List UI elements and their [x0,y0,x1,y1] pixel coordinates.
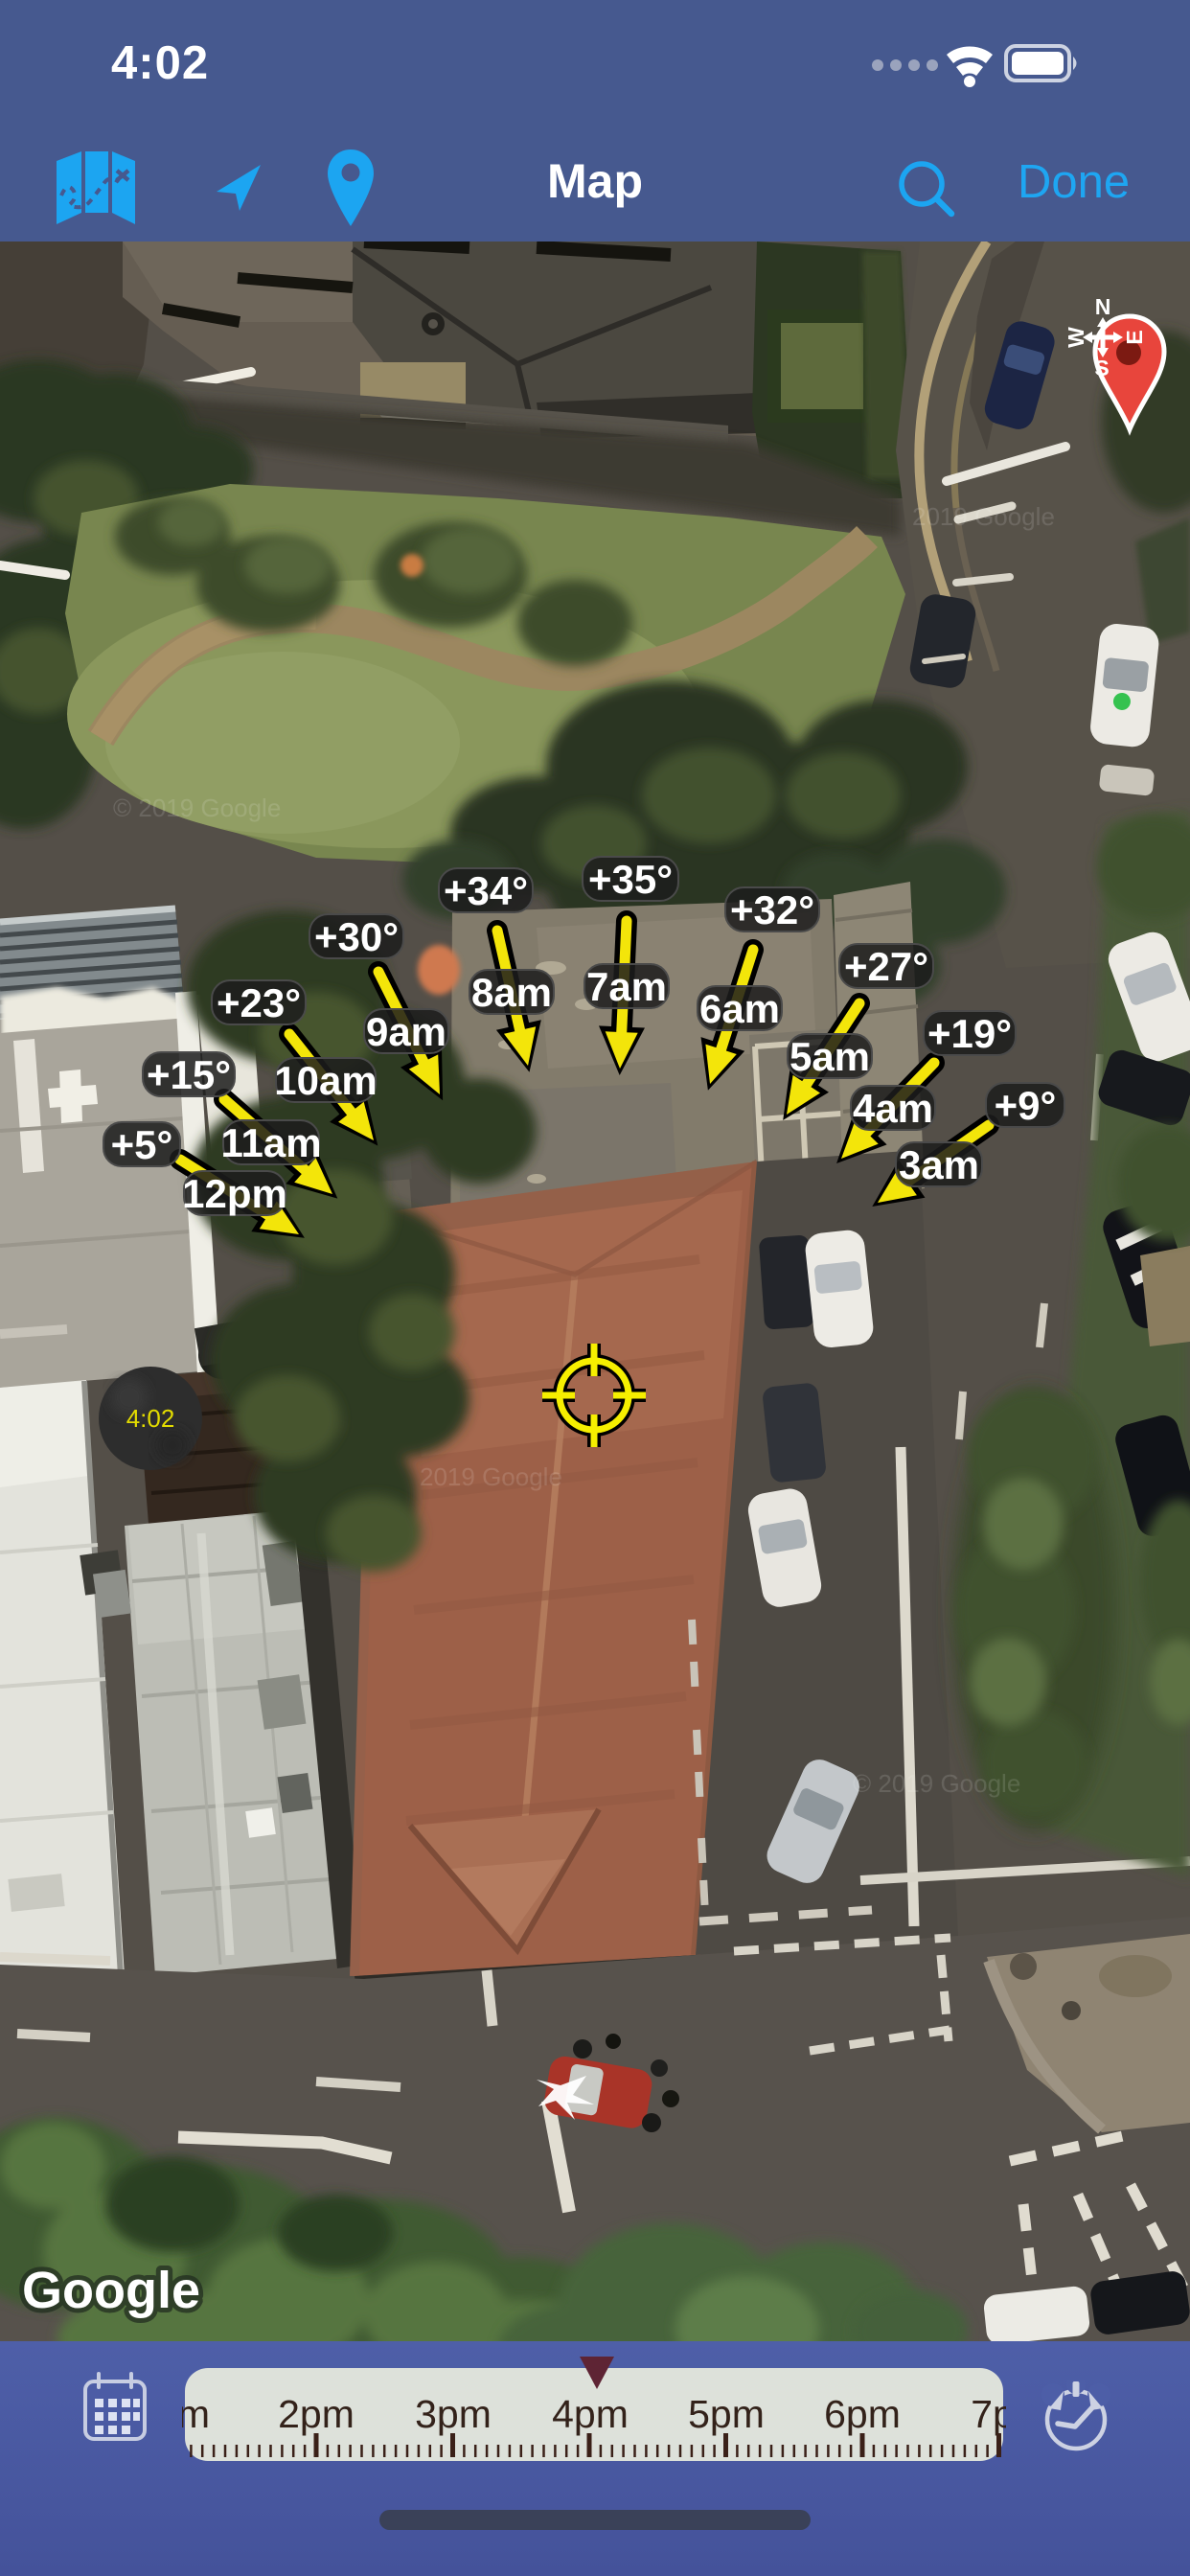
svg-text:+15°: +15° [147,1052,231,1097]
svg-text:10am: 10am [274,1058,377,1103]
svg-text:m: m [182,2392,210,2436]
svg-text:+34°: +34° [444,868,528,913]
svg-text:S: S [1094,356,1109,380]
svg-text:4am: 4am [853,1086,933,1131]
svg-text:+27°: +27° [844,944,928,989]
svg-text:3pm: 3pm [415,2392,492,2436]
svg-text:6pm: 6pm [824,2392,901,2436]
svg-text:4pm: 4pm [552,2392,629,2436]
svg-text:2019 Google: 2019 Google [420,1462,562,1491]
svg-text:+35°: +35° [588,857,673,902]
svg-text:E: E [1122,330,1147,344]
svg-text:+9°: +9° [995,1083,1057,1128]
svg-text:+30°: +30° [314,914,399,959]
svg-text:2pm: 2pm [278,2392,355,2436]
svg-text:W: W [1064,327,1088,348]
svg-text:6am: 6am [699,986,780,1031]
svg-text:+32°: +32° [730,887,814,932]
svg-text:12pm: 12pm [182,1171,287,1216]
svg-text:+23°: +23° [217,980,301,1025]
svg-text:5pm: 5pm [688,2392,765,2436]
svg-text:9am: 9am [366,1009,446,1054]
svg-text:5am: 5am [790,1034,870,1079]
svg-text:7am: 7am [586,964,667,1009]
svg-text:N: N [1095,294,1111,319]
svg-text:Google: Google [22,2262,200,2319]
svg-text:+19°: +19° [927,1011,1012,1056]
svg-text:© 2019 Google: © 2019 Google [113,793,281,822]
svg-text:8am: 8am [471,970,552,1015]
svg-text:2019 Google: 2019 Google [912,502,1055,531]
svg-text:+5°: +5° [111,1122,173,1167]
svg-text:© 2019 Google: © 2019 Google [853,1769,1020,1798]
svg-text:11am: 11am [220,1120,321,1165]
svg-text:7p: 7p [971,2392,1006,2436]
svg-text:4:02: 4:02 [126,1404,175,1433]
svg-text:3am: 3am [899,1142,979,1187]
